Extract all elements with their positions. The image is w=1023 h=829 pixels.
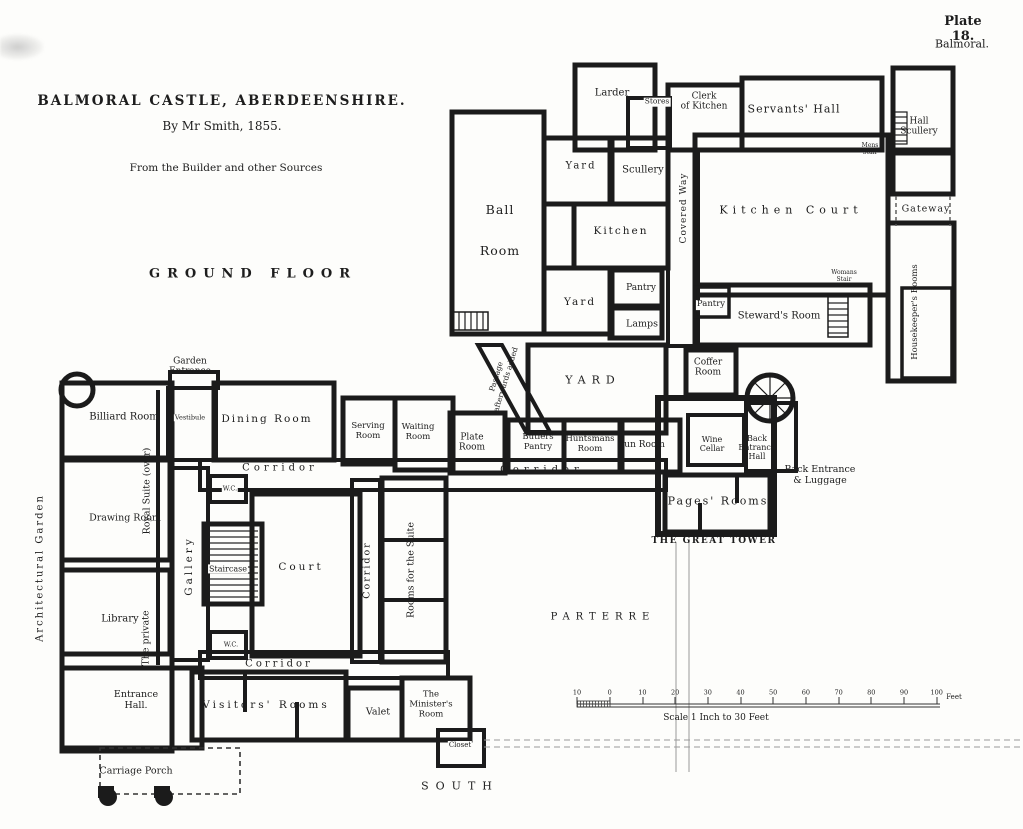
scale-unit-label: Feet: [946, 693, 962, 701]
stewards-stair-treads: [828, 295, 848, 337]
scale-tick-label-9: 80: [867, 689, 875, 696]
label-coffer-room: Coffer Room: [694, 358, 722, 379]
scale-tick-label-10: 90: [900, 689, 908, 696]
page-title: BALMORAL CASTLE, ABERDEENSHIRE.: [37, 94, 406, 110]
scale-tick-label-1: 0: [608, 689, 612, 696]
label-huntsmans-room: Huntsmans Room: [565, 435, 614, 455]
label-clerk-of-kitchen: Clerk of Kitchen: [681, 92, 728, 113]
scale-bar-rule: [577, 704, 940, 707]
title-source-note: From the Builder and other Sources: [130, 162, 323, 174]
label-billiard-room: Billiard Room: [89, 411, 159, 423]
label-gun-room: Gun Room: [617, 440, 665, 450]
parterre-axis-lines: [676, 542, 689, 772]
wall-drawing: [62, 458, 170, 560]
label-corridor-bottom: Corridor: [245, 658, 313, 670]
label-wc-upper: W.C.: [222, 485, 238, 492]
luggage-path: [484, 740, 1022, 747]
scale-tick-label-0: 10: [573, 689, 581, 696]
spiral-stair-treads: [749, 377, 791, 419]
label-yard-upper: Yard: [566, 160, 597, 172]
label-valet: Valet: [366, 708, 390, 719]
label-carriage-porch: Carriage Porch: [99, 767, 172, 778]
scale-tick-label-6: 50: [769, 689, 777, 696]
floor-label: GROUND FLOOR: [149, 268, 357, 283]
scale-tick-label-11: 100: [930, 689, 942, 696]
wall-housekeepers-outer: [888, 223, 954, 381]
label-scullery: Scullery: [622, 164, 664, 176]
wall-gateway-block: [893, 150, 953, 194]
label-kitchen: Kitchen: [593, 225, 648, 237]
label-corridor-main: Corridor: [500, 464, 584, 476]
label-ball-room: Ball Room: [480, 189, 520, 272]
label-corridor-upper-left: Corridor: [242, 462, 318, 474]
wall-vestibule: [168, 388, 216, 460]
label-library: Library: [101, 613, 138, 625]
label-parterre: PARTERRE: [551, 611, 656, 623]
label-the-great-tower: THE GREAT TOWER: [651, 536, 776, 546]
label-mens-stair: Mens Stair: [862, 143, 879, 157]
label-the-private: The private: [142, 610, 153, 665]
label-gallery: Gallery: [183, 536, 195, 596]
scale-tick-label-2: 10: [638, 689, 646, 696]
label-wine-cellar: Wine Cellar: [699, 435, 726, 453]
label-drawing-room: Drawing Room: [89, 514, 161, 525]
label-serving-room: Serving Room: [351, 422, 384, 442]
label-waiting-room: Waiting Room: [402, 423, 435, 443]
stair-hatching: [208, 112, 907, 600]
label-womans-stair: Womans Stair: [831, 270, 857, 284]
label-garden-entrance: Garden Entrance: [169, 357, 211, 378]
porch-base-left: [98, 786, 114, 798]
label-covered-way: Covered Way: [679, 173, 689, 244]
label-pages-rooms: Pages' Rooms: [668, 496, 769, 509]
label-dining-room: Dining Room: [221, 413, 312, 425]
label-court: Court: [278, 561, 323, 573]
label-closet: Closet: [448, 741, 472, 749]
label-hall-scullery: Hall Scullery: [900, 117, 937, 138]
ballroom-stair-treads: [452, 312, 488, 330]
label-yard-middle: YARD: [565, 375, 620, 388]
label-yard-lower: Yard: [564, 296, 596, 308]
label-gateway: Gateway: [902, 205, 951, 216]
scale-bar-ticks: [577, 697, 937, 704]
label-stores: Stores: [644, 98, 671, 107]
wall-turret: [61, 374, 93, 406]
label-back-entrance-hall: Back Entrance Hall: [738, 434, 775, 462]
scale-tick-label-8: 70: [834, 689, 842, 696]
label-butlers-pantry: Butlers Pantry: [522, 433, 553, 453]
label-back-entrance-luggage: Back Entrance & Luggage: [785, 465, 856, 487]
label-entrance-hall: Entrance Hall.: [114, 690, 158, 712]
label-staircase: Staircase: [208, 564, 248, 573]
scale-tick-label-5: 40: [736, 689, 744, 696]
label-lamps: Lamps: [626, 320, 658, 331]
scale-bar-hatched-segment: [577, 701, 610, 707]
porch-base-right: [154, 786, 170, 798]
label-kitchen-court: Kitchen Court: [719, 205, 862, 218]
label-architectural-garden: Architectural Garden: [34, 494, 46, 642]
label-plate-room: Plate Room: [459, 433, 485, 454]
scale-tick-label-3: 20: [671, 689, 679, 696]
scale-caption: Scale 1 Inch to 30 Feet: [663, 713, 769, 723]
label-ministers-room: The Minister's Room: [409, 690, 452, 719]
print-artifact: [0, 34, 44, 60]
label-pantry-stewards: Pantry: [696, 300, 726, 310]
plate-location: Balmoral.: [935, 39, 989, 52]
label-vestibule: Vestibule: [174, 414, 206, 421]
label-servants-hall: Servants' Hall: [748, 104, 841, 117]
label-south: SOUTH: [421, 781, 499, 794]
label-wc-lower: W.C.: [223, 641, 239, 648]
floor-plan-page: Plate 18. Balmoral. BALMORAL CASTLE, ABE…: [0, 0, 1023, 829]
label-pantry-kitchen: Pantry: [626, 283, 656, 293]
title-byline: By Mr Smith, 1855.: [162, 120, 281, 134]
label-stewards-room: Steward's Room: [738, 310, 821, 322]
wall-court: [252, 494, 360, 656]
label-rooms-for-the-suite: Rooms for the Suite: [407, 522, 418, 618]
label-visitors-rooms: Visitors' Rooms: [202, 699, 330, 711]
label-larder: Larder: [595, 87, 629, 99]
wall-library: [62, 570, 170, 654]
scale-tick-label-7: 60: [802, 689, 810, 696]
label-housekeepers-rooms: Housekeeper's Rooms: [911, 264, 921, 360]
scale-bar: [577, 697, 940, 707]
label-corridor-court: Corridor: [363, 541, 374, 598]
scale-tick-label-4: 30: [704, 689, 712, 696]
